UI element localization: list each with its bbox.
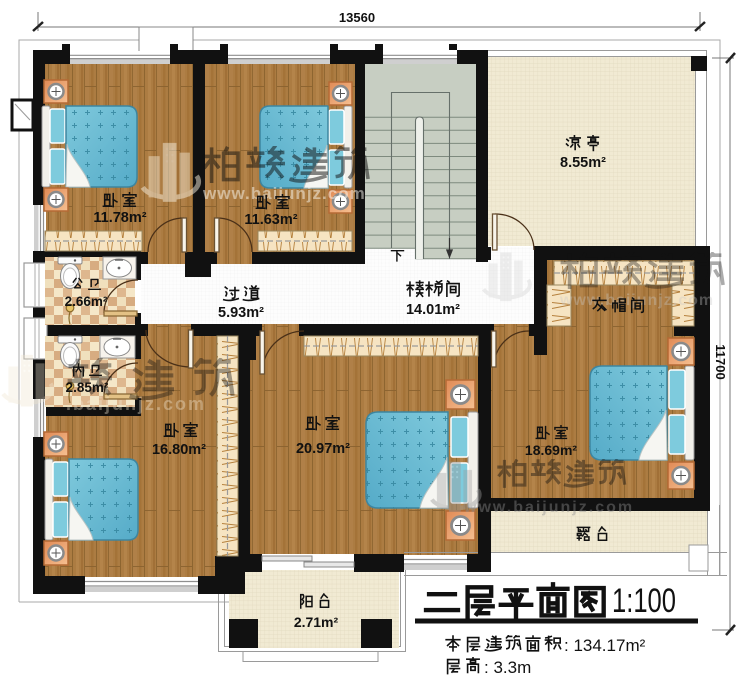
svg-text:2.85m²: 2.85m² <box>66 380 109 395</box>
svg-text:8.55m²: 8.55m² <box>560 155 606 171</box>
svg-text:13560: 13560 <box>339 10 375 25</box>
svg-text:.baijunjz.com: .baijunjz.com <box>66 394 206 414</box>
svg-text:11700: 11700 <box>713 344 728 379</box>
svg-text:2.66m²: 2.66m² <box>65 294 108 309</box>
svg-text:2.71m²: 2.71m² <box>294 614 339 630</box>
svg-text:16.80m²: 16.80m² <box>152 442 206 458</box>
svg-text:: 134.17m²: : 134.17m² <box>564 636 646 655</box>
svg-text:1:100: 1:100 <box>612 582 676 620</box>
svg-text:www.baijunjz.com: www.baijunjz.com <box>463 499 634 516</box>
svg-text:5.93m²: 5.93m² <box>218 305 264 321</box>
svg-text:18.69m²: 18.69m² <box>525 442 577 458</box>
svg-text:14.01m²: 14.01m² <box>406 302 460 318</box>
svg-text:: 3.3m: : 3.3m <box>484 658 531 677</box>
svg-text:11.78m²: 11.78m² <box>93 210 146 226</box>
svg-text:11.63m²: 11.63m² <box>244 212 297 228</box>
svg-text:20.97m²: 20.97m² <box>296 441 350 457</box>
